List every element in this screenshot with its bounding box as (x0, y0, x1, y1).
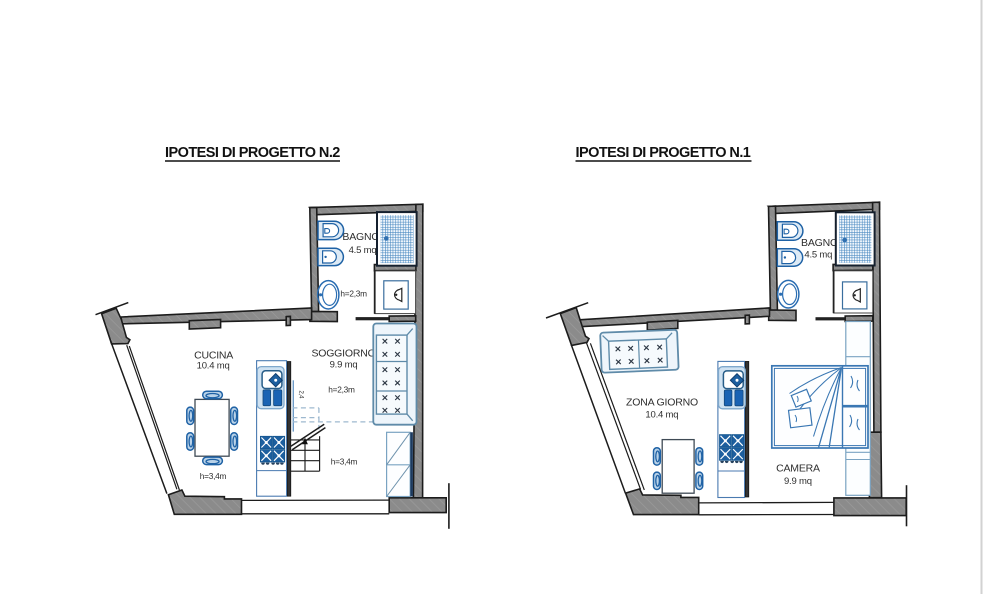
svg-text:10.4 mq: 10.4 mq (645, 410, 678, 421)
svg-text:SOGGIORNO: SOGGIORNO (311, 347, 375, 359)
svg-text:CUCINA: CUCINA (194, 349, 233, 361)
svg-text:10.4 mq: 10.4 mq (197, 361, 230, 372)
svg-text:h=3,4m: h=3,4m (200, 471, 227, 481)
svg-text:9.9 mq: 9.9 mq (330, 359, 358, 370)
svg-text:BAGNO: BAGNO (342, 231, 379, 243)
svg-text:BAGNO: BAGNO (801, 237, 838, 249)
svg-text:4.5 mq: 4.5 mq (349, 245, 377, 256)
svg-text:2,4: 2,4 (298, 391, 304, 400)
svg-text:ZONA GIORNO: ZONA GIORNO (626, 396, 698, 408)
svg-text:9.9 mq: 9.9 mq (784, 476, 812, 487)
svg-text:4.5 mq: 4.5 mq (804, 250, 832, 261)
svg-text:h=2,3m: h=2,3m (328, 384, 355, 394)
svg-text:IPOTESI DI PROGETTO N.2: IPOTESI DI PROGETTO N.2 (165, 145, 340, 161)
svg-text:h=2,3m: h=2,3m (340, 289, 367, 299)
svg-text:IPOTESI DI PROGETTO N.1: IPOTESI DI PROGETTO N.1 (576, 145, 751, 161)
svg-text:h=3,4m: h=3,4m (331, 456, 358, 466)
svg-text:CAMERA: CAMERA (776, 463, 820, 475)
